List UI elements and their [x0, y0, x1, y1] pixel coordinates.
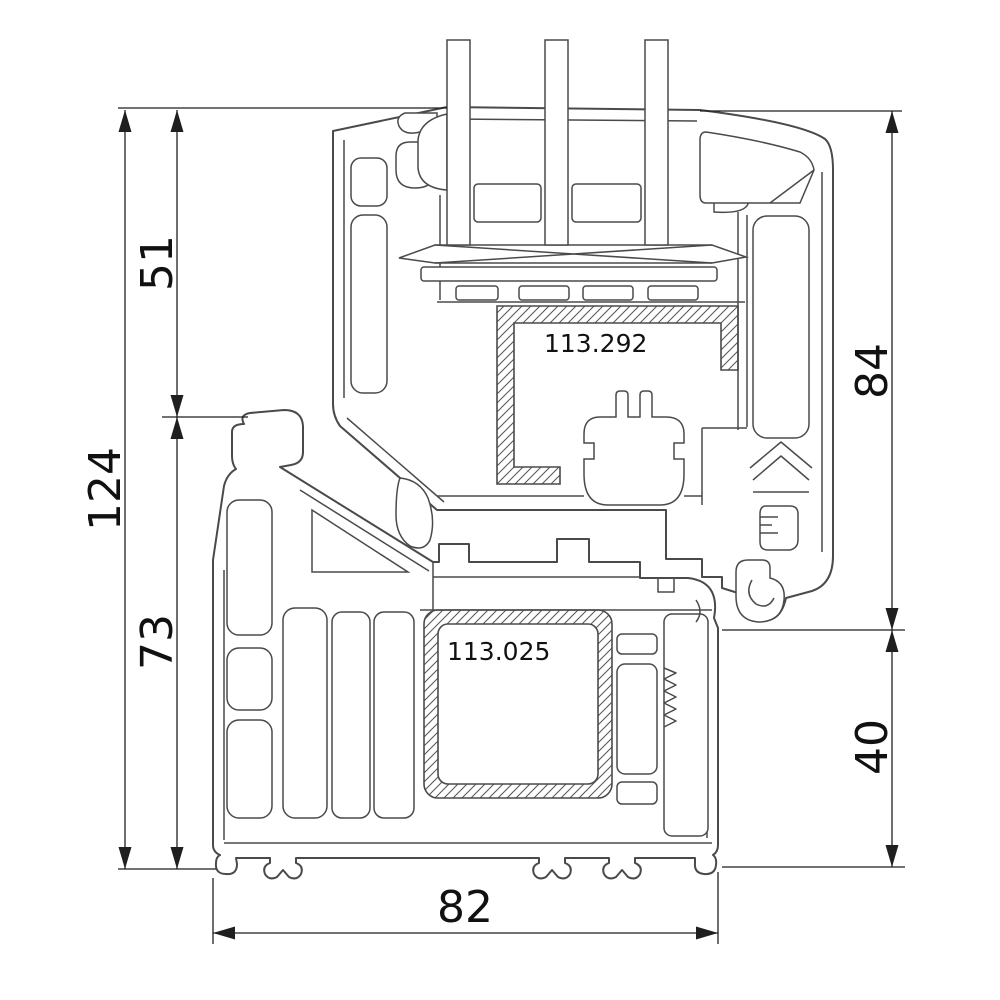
glass-spacer: [572, 184, 641, 222]
sash-steel-label: 113.292: [544, 329, 647, 358]
dim-label-82: 82: [437, 882, 493, 933]
glass-pane: [545, 40, 568, 245]
comb-gasket: [760, 506, 798, 550]
dimension-left-upper: 51: [132, 110, 184, 869]
glass-pane: [447, 40, 470, 245]
frame-steel-reinforcement: 113.025: [424, 610, 612, 798]
setting-strip: [421, 267, 717, 281]
profile-cross-section-svg: 113.025: [0, 0, 1000, 1000]
dimension-left-total: 124: [80, 110, 132, 869]
technical-drawing-canvas: 113.025: [0, 0, 1000, 1000]
dim-label-51: 51: [132, 235, 183, 291]
dim-label-124: 124: [80, 447, 131, 531]
dimension-right-lower: 40: [847, 630, 899, 867]
dimension-left-lower: 73: [132, 417, 184, 869]
dim-label-84: 84: [847, 343, 898, 399]
glass-pane: [645, 40, 668, 245]
dim-label-40: 40: [847, 719, 898, 775]
glass-spacer: [474, 184, 541, 222]
dimension-bottom-width: 82: [213, 882, 718, 940]
frame-steel-label: 113.025: [447, 637, 550, 666]
dim-label-73: 73: [132, 614, 183, 670]
